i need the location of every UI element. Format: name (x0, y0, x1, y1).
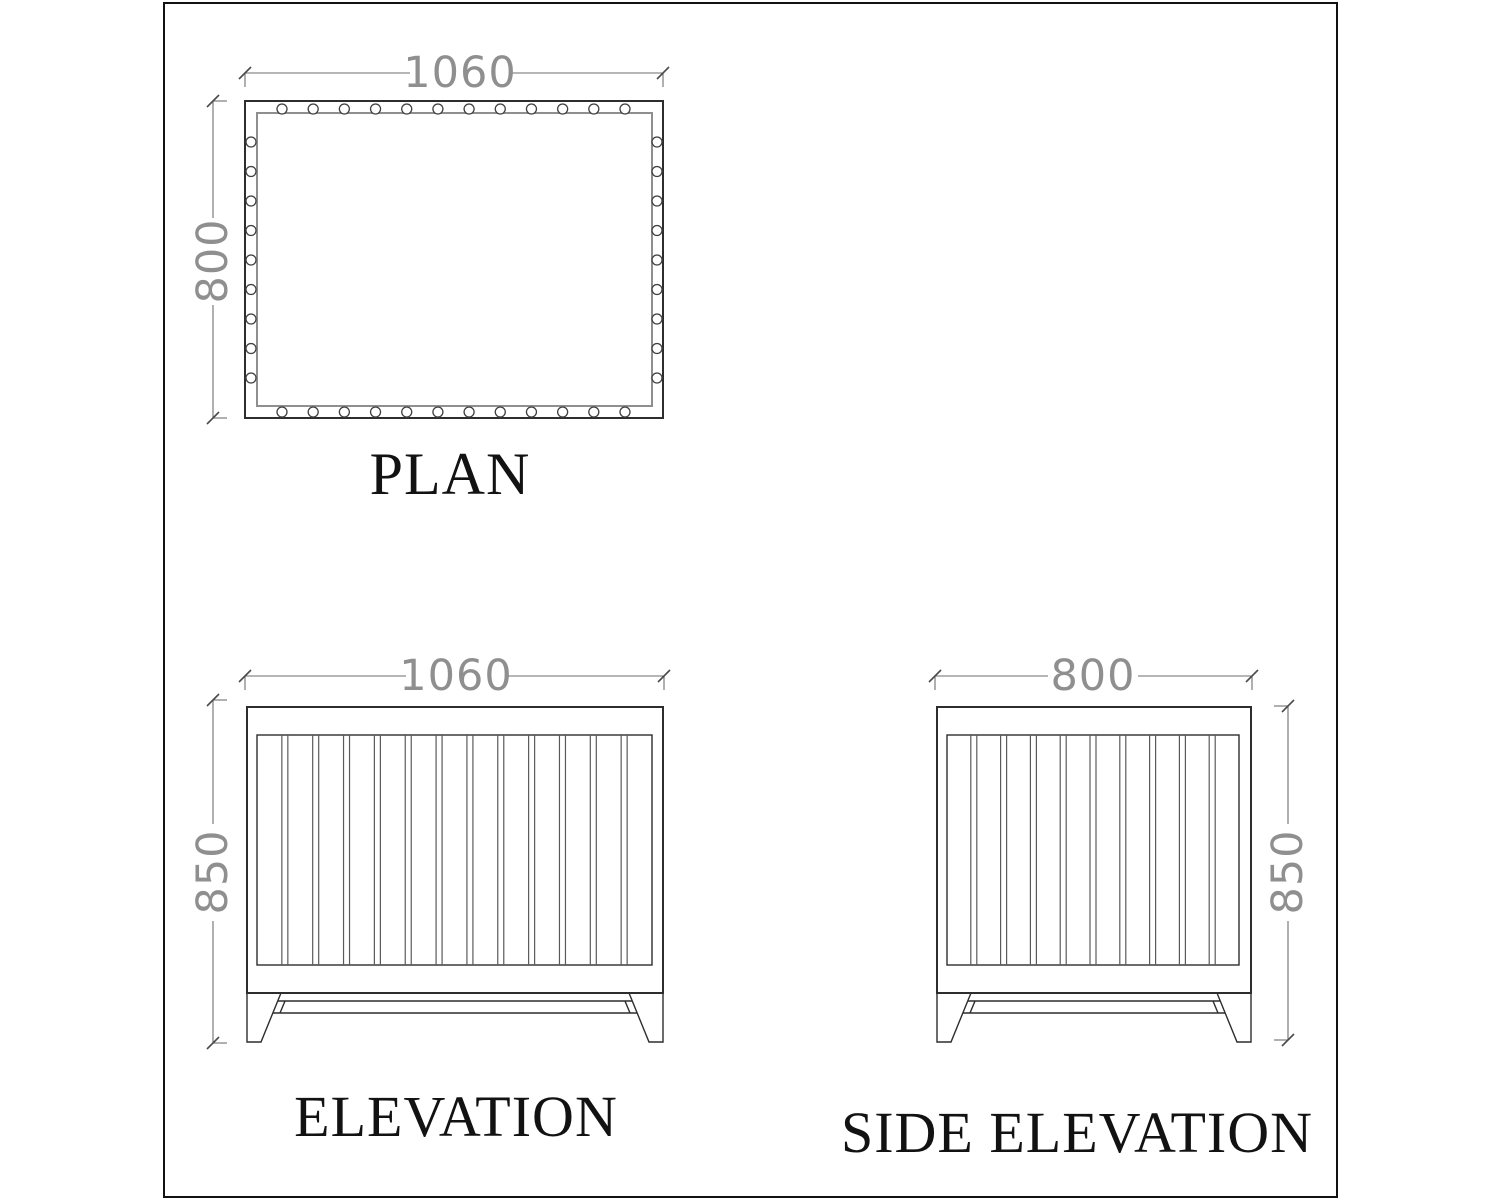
plan-width-dimension: 1060 (239, 48, 669, 98)
side-elevation-height-dimension-value: 850 (1263, 829, 1313, 914)
fastener-circle (277, 104, 287, 114)
fastener-circle (652, 196, 662, 206)
fastener-circle (652, 255, 662, 265)
plan-label: PLAN (370, 441, 531, 507)
elevation-height-dimension-value: 850 (188, 829, 238, 914)
fastener-circle (620, 104, 630, 114)
side-elevation-width-dimension-value: 800 (1050, 651, 1135, 701)
sheet-border (164, 3, 1337, 1197)
side-elevation-right-leg (1217, 993, 1251, 1042)
fastener-circle (246, 226, 256, 236)
fastener-circle (652, 226, 662, 236)
plan-height-dimension-value: 800 (188, 218, 238, 303)
fastener-circle (339, 104, 349, 114)
plan-fastener-row-bottom (277, 407, 630, 417)
side-elevation-outer-frame (937, 707, 1251, 993)
fastener-circle (464, 104, 474, 114)
fastener-circle (620, 407, 630, 417)
fastener-circle (526, 407, 536, 417)
side-elevation-view: 800 850 SIDE ELEVATION (841, 651, 1313, 1165)
fastener-circle (495, 104, 505, 114)
side-elevation-slat-gaps (971, 735, 1215, 965)
fastener-circle (402, 407, 412, 417)
fastener-circle (246, 285, 256, 295)
elevation-right-leg (629, 993, 663, 1042)
fastener-circle (495, 407, 505, 417)
fastener-circle (402, 104, 412, 114)
fastener-circle (433, 407, 443, 417)
side-elevation-stretcher-rail (963, 1001, 1225, 1013)
fastener-circle (371, 407, 381, 417)
elevation-width-dimension-value: 1060 (399, 651, 512, 701)
fastener-circle (339, 407, 349, 417)
fastener-circle (308, 104, 318, 114)
fastener-circle (526, 104, 536, 114)
fastener-circle (464, 407, 474, 417)
fastener-circle (652, 167, 662, 177)
fastener-circle (652, 314, 662, 324)
fastener-circle (652, 344, 662, 354)
side-elevation-height-dimension: 850 (1263, 700, 1313, 1046)
fastener-circle (246, 255, 256, 265)
technical-drawing-canvas: 1060 800 PLAN 1 (0, 0, 1500, 1200)
fastener-circle (433, 104, 443, 114)
plan-fastener-col-left (246, 137, 256, 383)
plan-view: 1060 800 PLAN (188, 48, 669, 507)
fastener-circle (277, 407, 287, 417)
plan-width-dimension-value: 1060 (403, 48, 516, 98)
fastener-circle (652, 137, 662, 147)
elevation-left-leg (247, 993, 281, 1042)
plan-height-dimension: 800 (188, 95, 238, 424)
fastener-circle (246, 314, 256, 324)
side-elevation-slat-panel (947, 735, 1239, 965)
fastener-circle (589, 104, 599, 114)
plan-inner-panel (257, 113, 652, 406)
fastener-circle (652, 373, 662, 383)
elevation-stretcher-rail (273, 1001, 637, 1013)
fastener-circle (246, 373, 256, 383)
fastener-circle (246, 137, 256, 147)
elevation-slat-panel (257, 735, 652, 965)
elevation-outer-frame (247, 707, 663, 993)
elevation-slat-gaps (282, 735, 627, 965)
elevation-view: 1060 850 ELEVATION (188, 651, 670, 1149)
elevation-height-dimension: 850 (188, 694, 238, 1049)
side-elevation-left-leg (937, 993, 971, 1042)
fastener-circle (308, 407, 318, 417)
fastener-circle (589, 407, 599, 417)
fastener-circle (246, 196, 256, 206)
elevation-label: ELEVATION (294, 1084, 618, 1149)
elevation-width-dimension: 1060 (239, 651, 670, 701)
fastener-circle (246, 344, 256, 354)
side-elevation-width-dimension: 800 (929, 651, 1258, 701)
side-elevation-label: SIDE ELEVATION (841, 1100, 1313, 1165)
plan-fastener-col-right (652, 137, 662, 383)
plan-outer-frame (245, 101, 663, 418)
fastener-circle (371, 104, 381, 114)
fastener-circle (558, 104, 568, 114)
drawing-sheet: 1060 800 PLAN 1 (0, 0, 1500, 1200)
fastener-circle (652, 285, 662, 295)
fastener-circle (558, 407, 568, 417)
fastener-circle (246, 167, 256, 177)
